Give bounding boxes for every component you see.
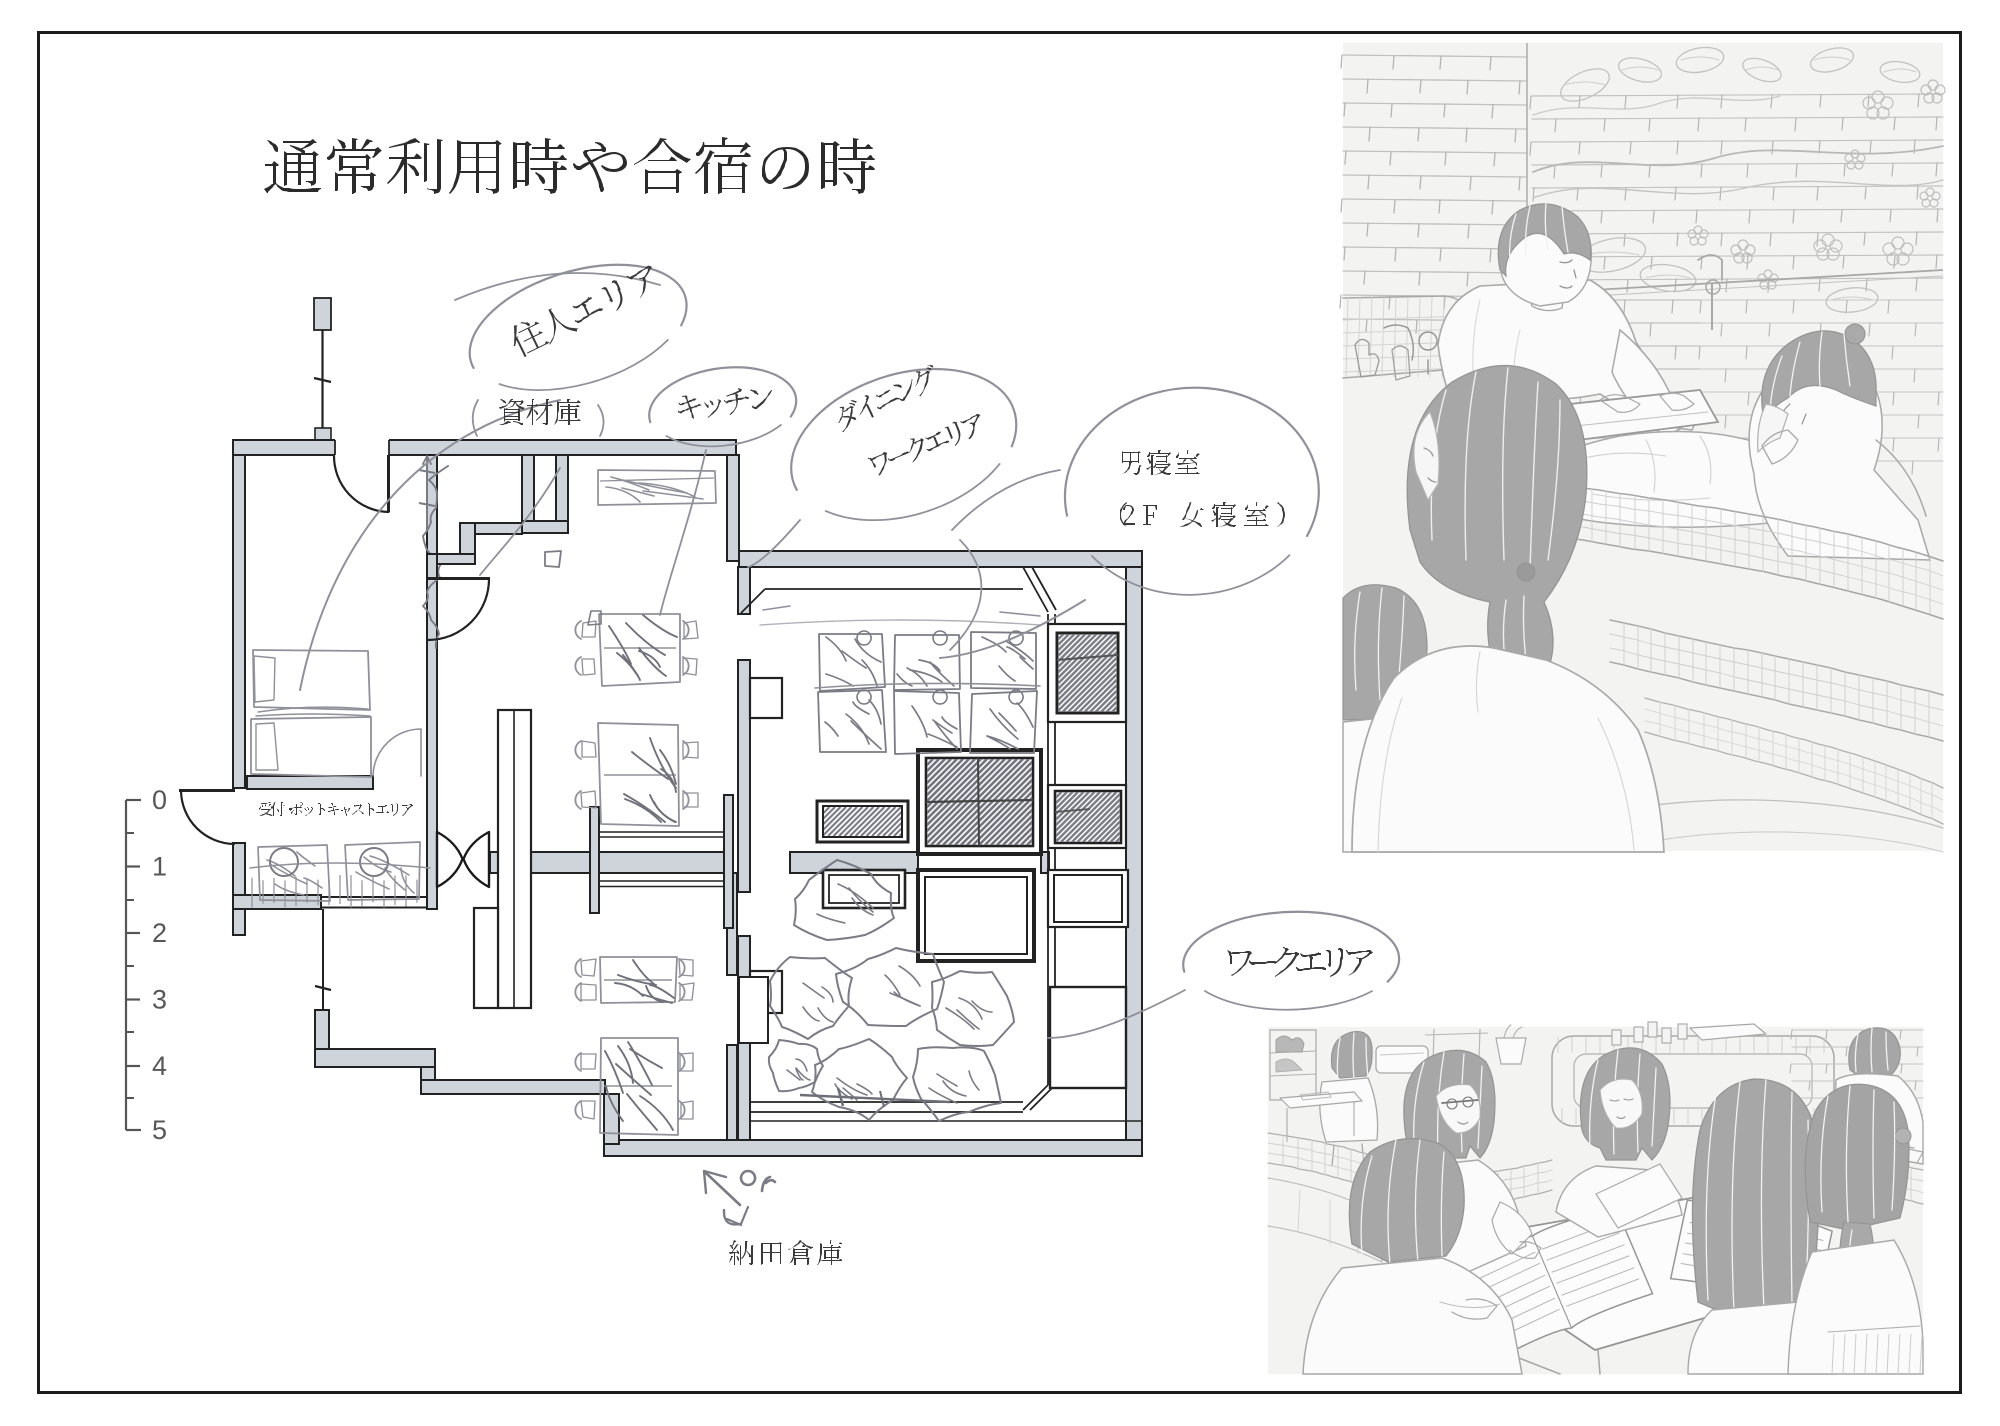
svg-text:2: 2 [152, 918, 167, 948]
svg-text:5: 5 [152, 1115, 167, 1145]
svg-text:0: 0 [152, 785, 167, 815]
svg-text:4: 4 [152, 1051, 167, 1081]
svg-text:3: 3 [152, 985, 167, 1015]
svg-text:1: 1 [152, 852, 167, 882]
